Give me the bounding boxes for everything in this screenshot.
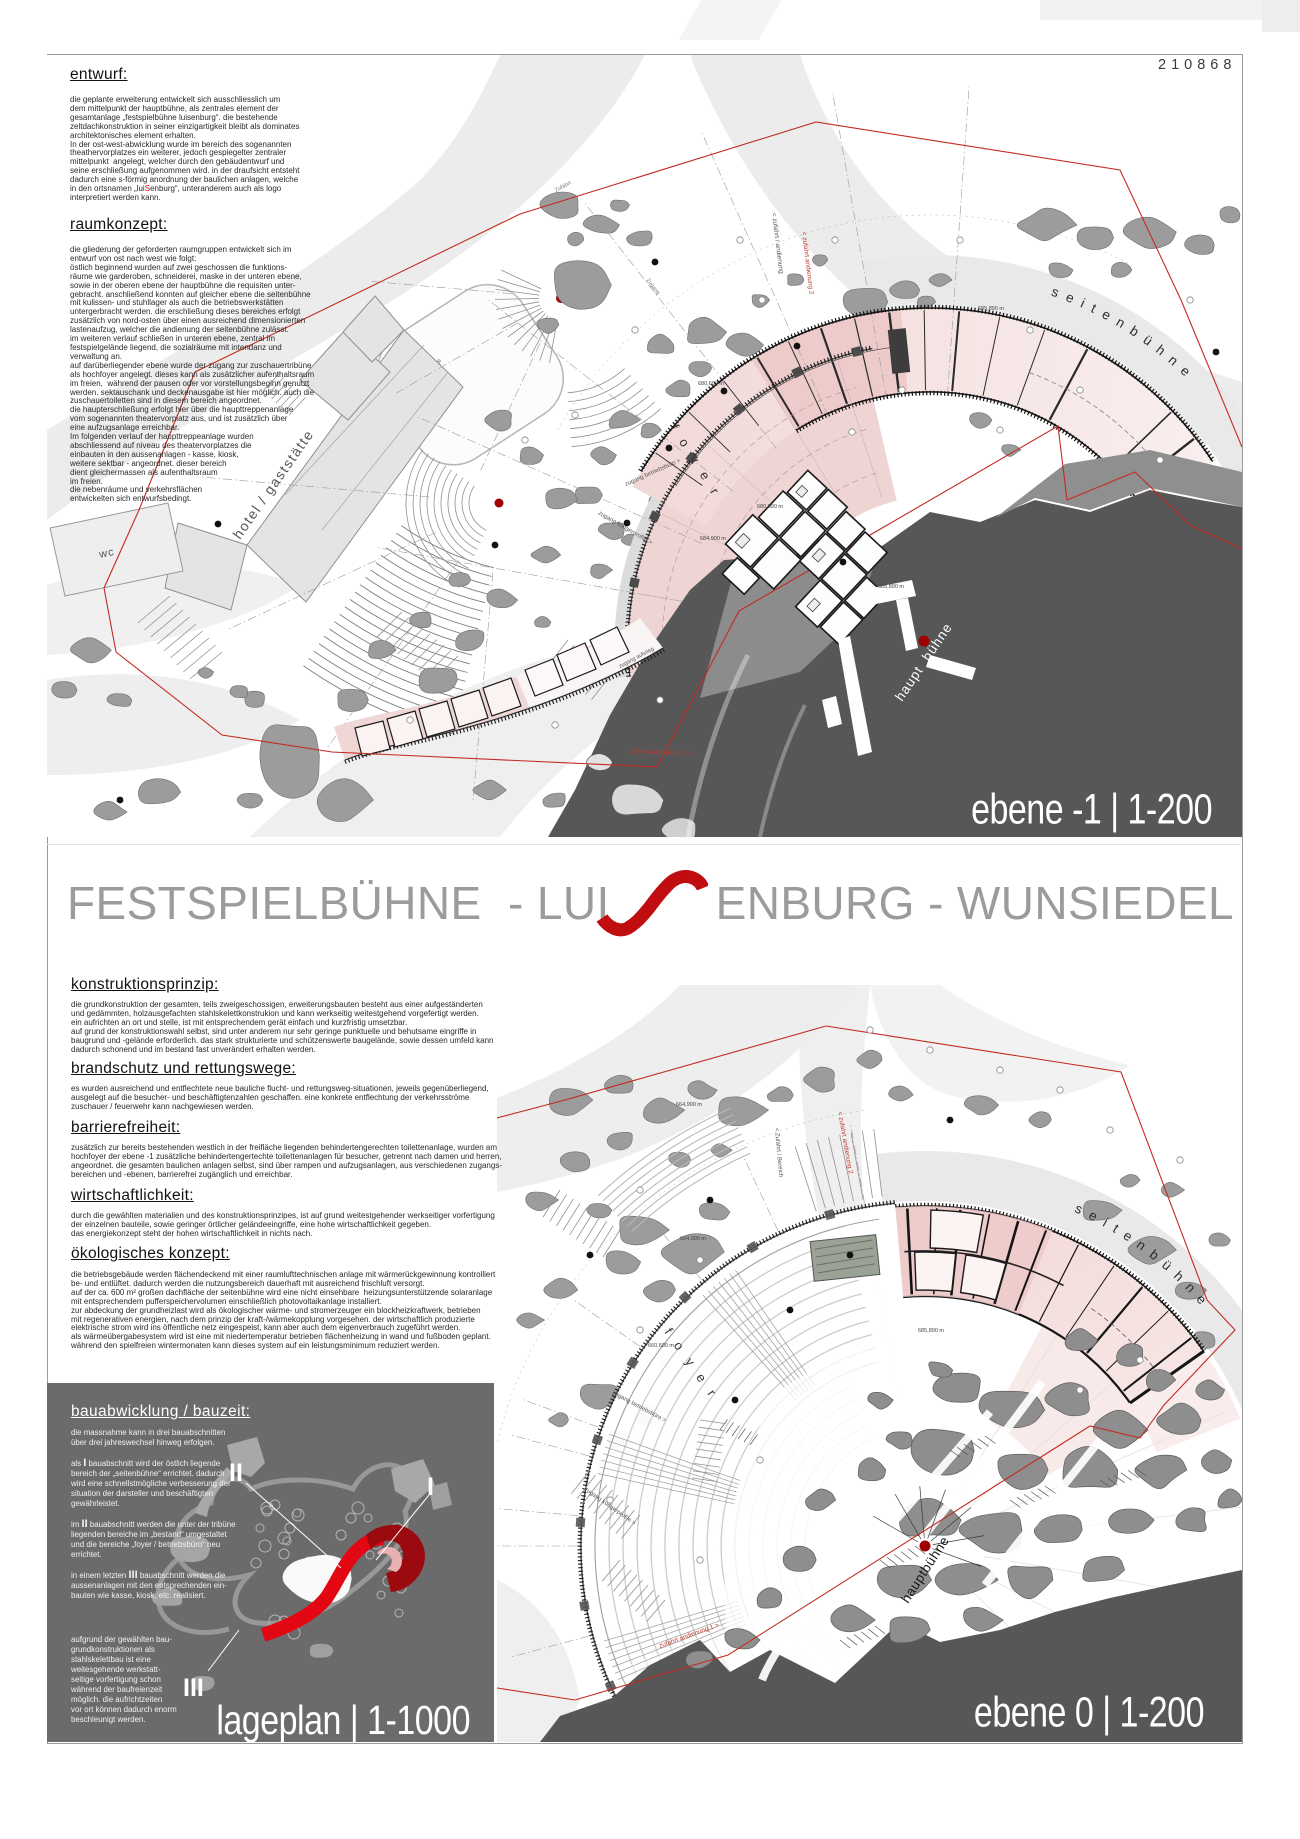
svg-text:664,900 m: 664,900 m — [676, 1102, 702, 1108]
svg-text:680,690 m: 680,690 m — [757, 504, 783, 510]
svg-text:685,890 m: 685,890 m — [978, 306, 1004, 312]
svg-text:I: I — [427, 1473, 434, 1501]
svg-text:685,890 m: 685,890 m — [878, 584, 904, 590]
svg-text:680,690 m: 680,690 m — [698, 381, 724, 387]
svg-text:664,900 m: 664,900 m — [680, 1236, 706, 1242]
svg-text:684,900 m: 684,900 m — [700, 536, 726, 542]
svg-text:685,890 m: 685,890 m — [918, 1328, 944, 1334]
svg-text:660,600 m: 660,600 m — [648, 1343, 674, 1349]
